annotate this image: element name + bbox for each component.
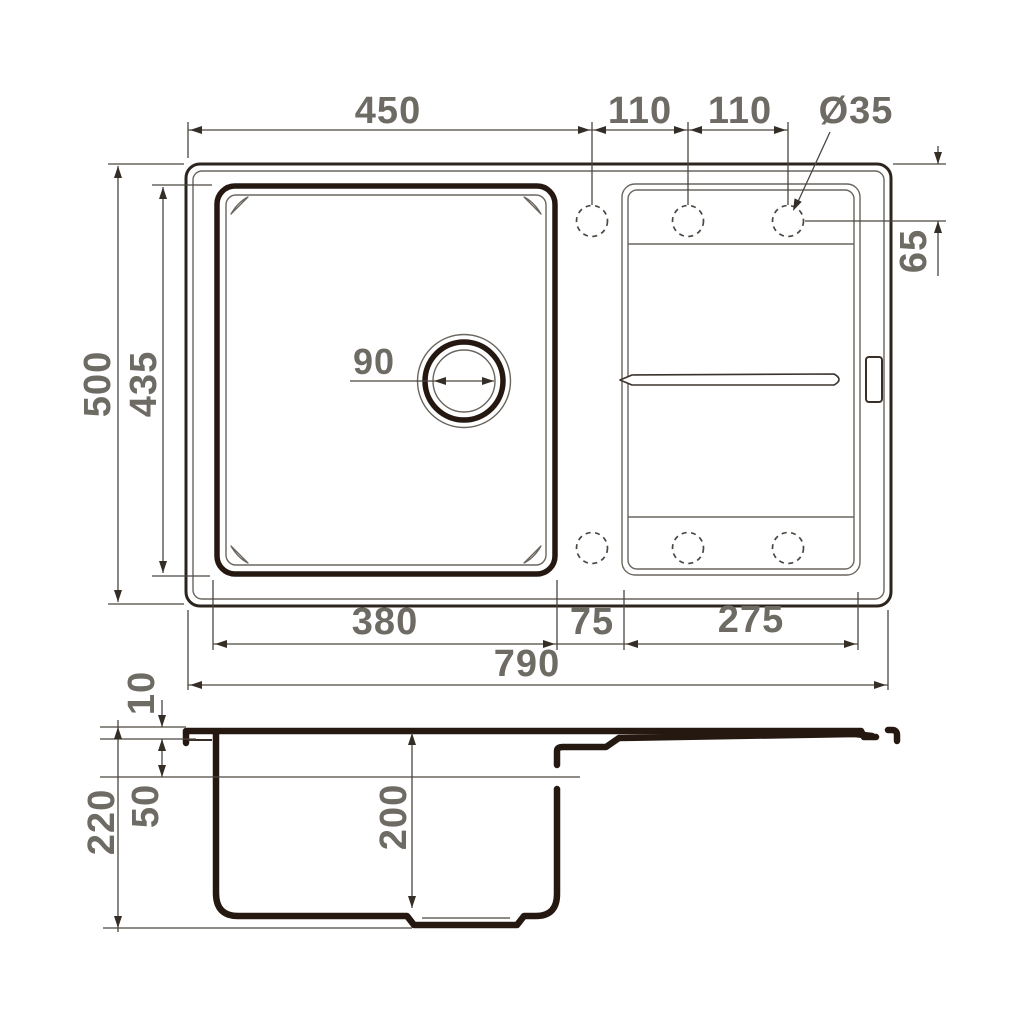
faucet-hole-dashed	[773, 206, 804, 237]
dim-label-380: 380	[352, 601, 418, 643]
top-view	[186, 164, 891, 606]
bowl-corner-bevel	[231, 546, 248, 563]
section-right-edge	[888, 730, 897, 741]
dim-label-65: 65	[893, 229, 935, 273]
faucet-hole-dashed	[673, 206, 704, 237]
bowl-corner-bevel	[231, 197, 248, 214]
dim-label-110-right: 110	[708, 90, 772, 132]
dim-label-110-left: 110	[608, 90, 672, 132]
drawing-canvas: 450 110 110 Ø35 65 500 435 90 380 75 275	[0, 0, 1024, 1024]
faucet-hole-dashed	[773, 533, 804, 564]
dim-label-450: 450	[355, 90, 421, 132]
hole-leader-line	[796, 132, 830, 206]
dim-label-275: 275	[718, 599, 784, 641]
dim-label-10: 10	[121, 671, 163, 715]
bowl-corner-bevel	[524, 197, 541, 214]
dim-label-50: 50	[125, 784, 167, 828]
faucet-hole-dashed	[577, 533, 608, 564]
dim-label-435: 435	[123, 351, 165, 417]
dim-label-220: 220	[81, 789, 123, 855]
top-view-dimensions: 450 110 110 Ø35 65 500 435 90 380 75 275	[77, 90, 946, 690]
bowl-corner-bevel	[524, 546, 541, 563]
drainboard	[620, 184, 860, 575]
side-view-dimensions: 10 50 220 200	[81, 671, 416, 932]
dim-label-790: 790	[494, 643, 560, 685]
sink-technical-drawing: 450 110 110 Ø35 65 500 435 90 380 75 275	[0, 0, 1024, 1024]
dim-label-500: 500	[77, 351, 119, 417]
side-view	[100, 730, 897, 925]
section-drainboard	[557, 734, 872, 765]
dim-label-200: 200	[373, 784, 415, 850]
dim-label-90: 90	[353, 341, 395, 382]
faucet-hole-dashed	[673, 533, 704, 564]
overflow-slot	[866, 357, 882, 402]
drainboard-groove	[620, 374, 839, 385]
faucet-hole-dashed	[577, 206, 608, 237]
dim-label-hole-diameter: Ø35	[819, 90, 894, 132]
dim-label-75: 75	[570, 601, 614, 643]
